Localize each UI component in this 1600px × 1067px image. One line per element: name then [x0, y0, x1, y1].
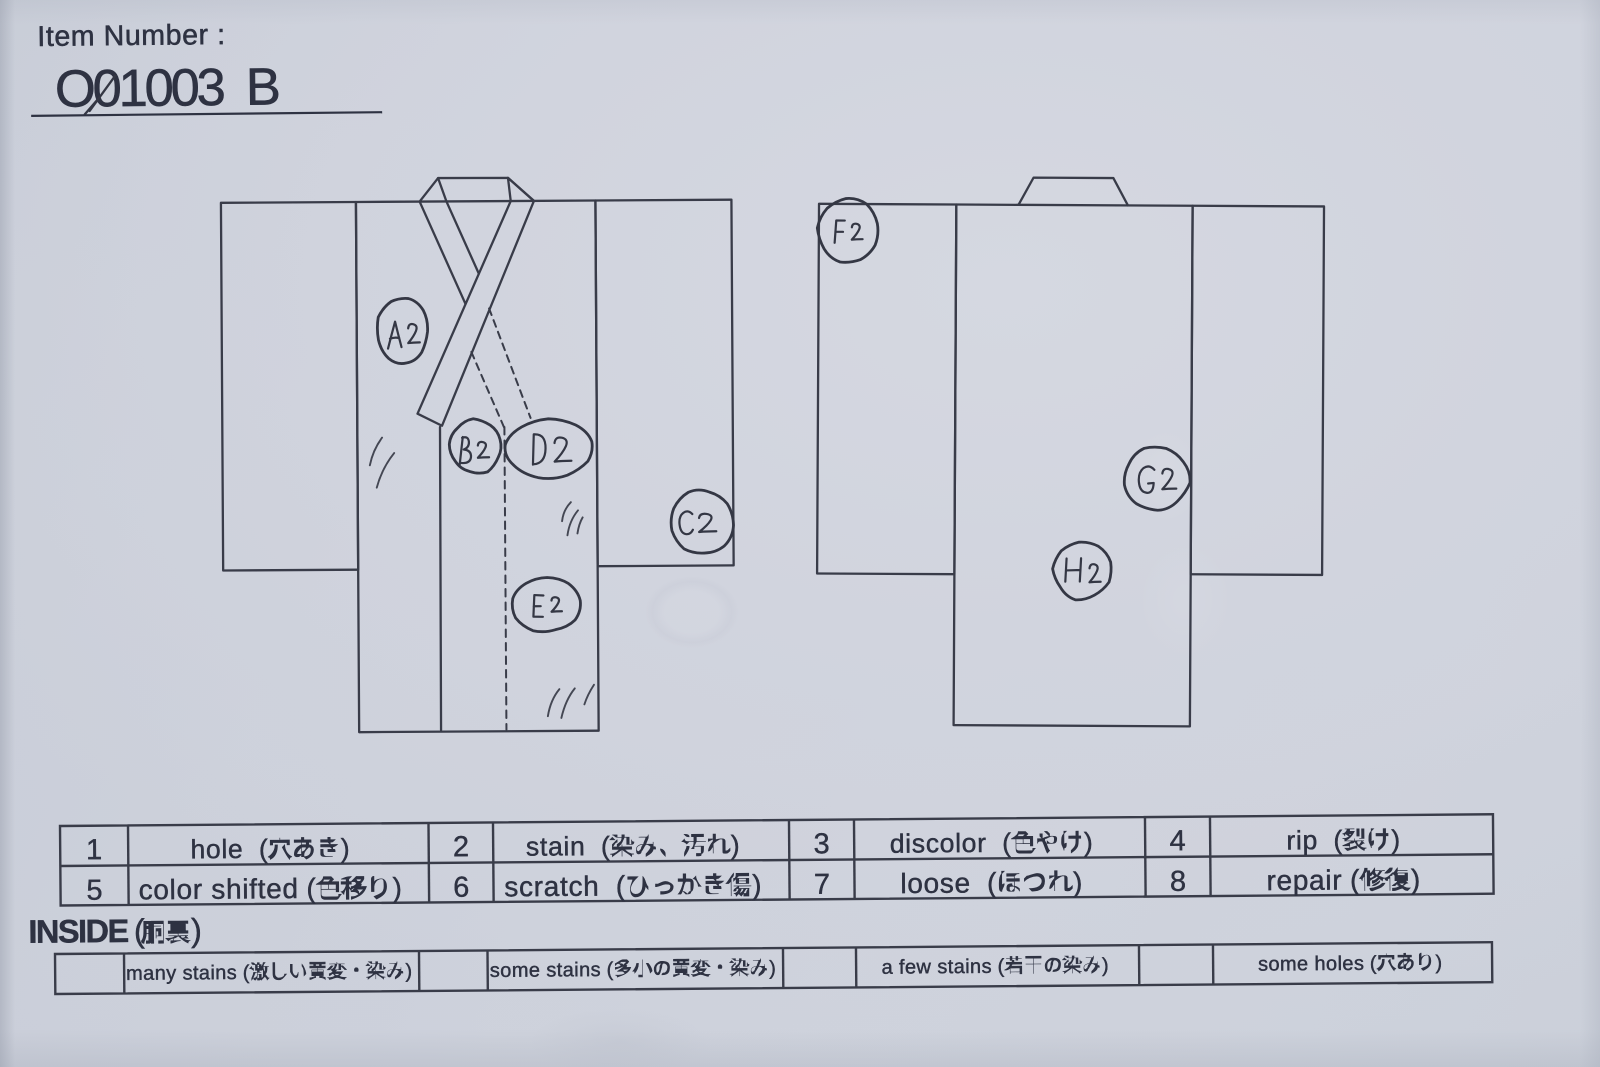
svg-text:a few stains: a few stains	[881, 956, 992, 979]
svg-text:1: 1	[86, 834, 102, 866]
svg-text:many stains: many stains	[126, 962, 237, 985]
svg-text:(: (	[259, 834, 268, 864]
svg-text:5: 5	[86, 875, 102, 907]
svg-text:scratch: scratch	[504, 871, 599, 903]
svg-text:): )	[1435, 952, 1442, 974]
svg-text:): )	[191, 912, 202, 948]
svg-text:O01003: O01003	[55, 58, 224, 119]
svg-text:(: (	[616, 870, 626, 901]
svg-text:): )	[341, 833, 350, 863]
svg-text:some holes: some holes	[1258, 953, 1364, 976]
svg-text:(: (	[243, 962, 250, 984]
svg-text:6: 6	[453, 872, 469, 904]
svg-text:(: (	[1370, 953, 1377, 975]
svg-text:(: (	[306, 873, 316, 904]
svg-text:Item Number :: Item Number :	[37, 19, 226, 53]
svg-text:some stains: some stains	[490, 959, 601, 982]
svg-text:INSIDE: INSIDE	[28, 913, 128, 950]
svg-text:(: (	[1350, 864, 1360, 895]
svg-text:rip: rip	[1286, 825, 1318, 855]
svg-text:(: (	[1002, 828, 1011, 858]
svg-text:color shifted: color shifted	[138, 873, 298, 905]
svg-text:stain: stain	[526, 831, 586, 861]
svg-text:): )	[1391, 825, 1400, 855]
svg-text:): )	[1411, 864, 1421, 895]
svg-text:7: 7	[814, 869, 830, 901]
svg-text:B: B	[246, 57, 282, 116]
svg-text:(: (	[997, 956, 1004, 978]
svg-text:discolor: discolor	[890, 828, 987, 859]
svg-text:repair: repair	[1266, 864, 1342, 896]
svg-text:): )	[1073, 867, 1083, 898]
svg-text:): )	[1084, 827, 1093, 857]
svg-text:hole: hole	[190, 834, 243, 864]
svg-text:): )	[752, 869, 762, 900]
svg-text:(: (	[1333, 825, 1342, 855]
svg-text:): )	[769, 958, 776, 980]
svg-text:(: (	[987, 867, 997, 898]
svg-text:8: 8	[1170, 866, 1186, 898]
svg-text:3: 3	[813, 828, 829, 860]
svg-text:): )	[1102, 955, 1109, 977]
svg-text:4: 4	[1169, 825, 1185, 857]
svg-text:2: 2	[453, 831, 469, 863]
svg-text:loose: loose	[900, 868, 971, 900]
svg-text:(: (	[606, 959, 613, 981]
svg-text:): )	[731, 830, 740, 860]
svg-text:(: (	[601, 831, 610, 861]
svg-text:): )	[392, 872, 402, 903]
svg-text:): )	[405, 961, 412, 983]
